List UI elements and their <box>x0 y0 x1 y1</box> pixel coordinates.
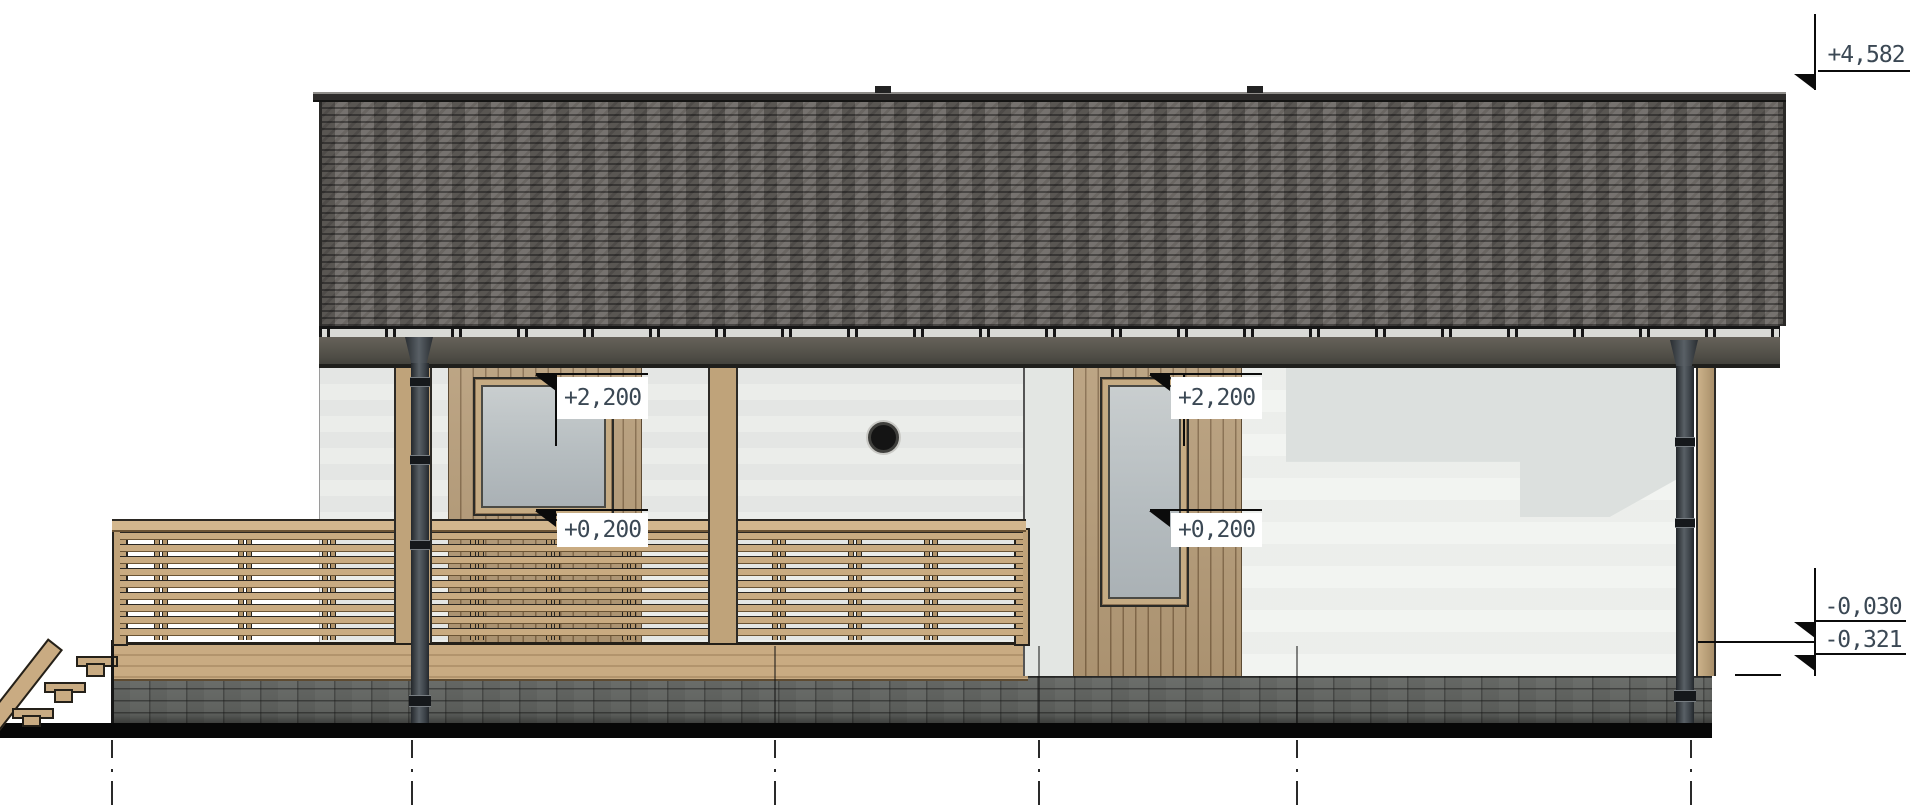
downspout-left-foot <box>409 695 431 707</box>
elevation-drawing-canvas: +4,582 +2,200 +0,200 +2,200 +0,200 -0,03… <box>0 0 1920 805</box>
marker-ridge-value: +4,582 <box>1822 42 1910 69</box>
roof-shingles <box>319 102 1786 326</box>
marker-arrow <box>535 511 556 527</box>
stair-riser-1 <box>86 663 105 677</box>
downspout-right-collar <box>1675 437 1695 447</box>
marker-grade-lower-arrow <box>1794 655 1815 671</box>
roof-ridge-tab-1 <box>875 86 891 93</box>
foundation-stone-band <box>112 676 1712 723</box>
main-white-wall <box>1240 368 1676 676</box>
downspout-left-collar <box>410 540 430 550</box>
wall-vent-circle <box>868 422 899 453</box>
marker-value: +0,200 <box>557 513 648 547</box>
downspout-left-collar <box>410 455 430 465</box>
marker-arrow <box>1149 375 1170 391</box>
downspout-right-collar <box>1675 518 1695 528</box>
stair-riser-2 <box>54 689 73 703</box>
ground-line <box>0 723 1712 738</box>
roof-ridge-cap <box>313 92 1786 102</box>
deck-edge-line <box>111 640 114 723</box>
axis-line-4-overlay <box>1038 646 1040 723</box>
railing-horizontal-slats <box>120 532 1023 640</box>
marker-grade-upper-value: -0,030 <box>1820 594 1906 620</box>
roof-ridge-tab-2 <box>1247 86 1263 93</box>
stair-riser-3 <box>22 715 41 727</box>
marker-arrow <box>1149 511 1170 527</box>
roof-fascia <box>319 337 1780 368</box>
axis-line-5-overlay <box>1296 646 1298 723</box>
corner-trim-right <box>1696 368 1716 676</box>
marker-grade-wall-leader <box>1698 641 1816 643</box>
downspout-left-collar <box>410 377 430 387</box>
marker-value: +2,200 <box>557 377 648 419</box>
roof-shadow-on-wall <box>1286 368 1676 517</box>
marker-grade-upper-underline <box>1816 620 1906 622</box>
marker-grade-lower-value: -0,321 <box>1820 627 1906 653</box>
deck-rim-band <box>112 642 1028 681</box>
wall-corner-strip <box>1023 368 1075 676</box>
downspout-right-foot <box>1674 690 1696 702</box>
axis-line-3-overlay <box>774 646 776 723</box>
marker-ridge-underline <box>1818 70 1910 72</box>
marker-arrow <box>535 375 556 391</box>
marker-grade-base-tick <box>1735 674 1781 676</box>
marker-value: +2,200 <box>1171 377 1262 419</box>
marker-grade-lower-underline <box>1816 653 1906 655</box>
porch-post-middle <box>708 368 738 643</box>
marker-ridge-arrow <box>1794 74 1815 90</box>
marker-grade-upper-arrow <box>1794 622 1815 638</box>
marker-value: +0,200 <box>1171 513 1262 547</box>
downspout-right-pipe <box>1676 366 1694 723</box>
